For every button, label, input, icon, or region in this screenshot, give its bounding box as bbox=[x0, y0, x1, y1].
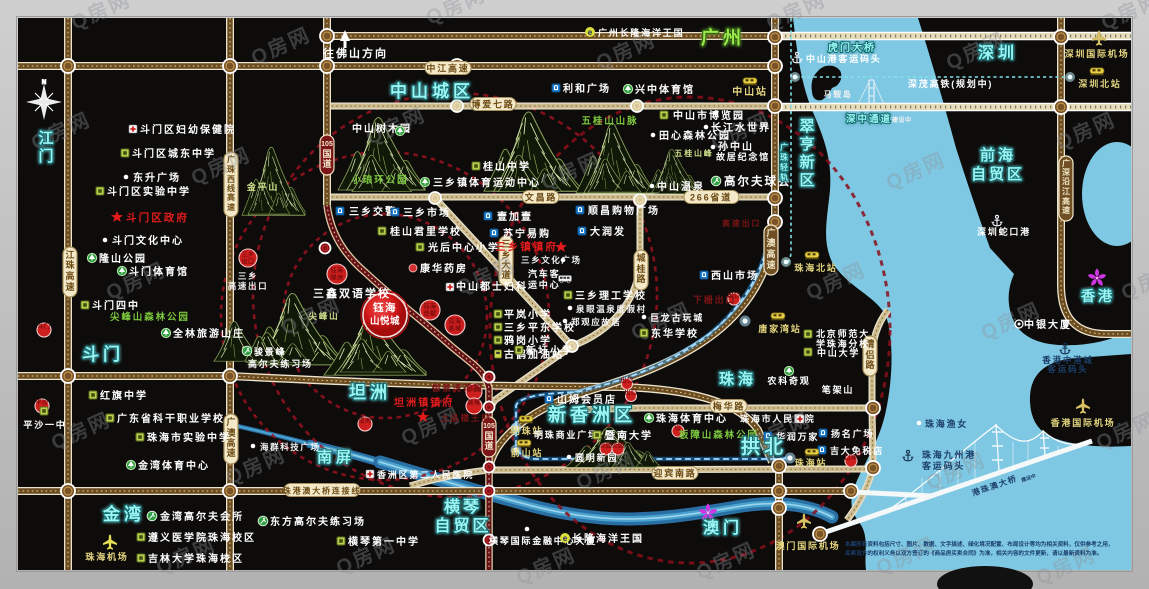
svg-text:桂: 桂 bbox=[635, 263, 645, 274]
svg-text:珠海: 珠海 bbox=[719, 370, 757, 388]
svg-text:前山站: 前山站 bbox=[511, 447, 543, 458]
svg-text:红旗中学: 红旗中学 bbox=[100, 389, 148, 402]
svg-text:苏宁易购: 苏宁易购 bbox=[503, 227, 551, 240]
svg-text:中山站: 中山站 bbox=[732, 85, 767, 98]
svg-text:斗门区妇幼保健院: 斗门区妇幼保健院 bbox=[140, 123, 236, 136]
svg-text:山姆会员店: 山姆会员店 bbox=[557, 393, 617, 406]
svg-text:吉大免税店: 吉大免税店 bbox=[830, 445, 884, 456]
svg-text:海群科技广场: 海群科技广场 bbox=[260, 442, 321, 452]
svg-text:中山大学: 中山大学 bbox=[817, 347, 860, 358]
svg-text:隆山公园: 隆山公园 bbox=[99, 252, 147, 265]
svg-text:广: 广 bbox=[1062, 158, 1070, 168]
svg-text:侣: 侣 bbox=[865, 349, 874, 360]
svg-text:中山都士妇科: 中山都士妇科 bbox=[456, 280, 528, 293]
svg-text:明珠商业广场: 明珠商业广场 bbox=[534, 429, 599, 440]
svg-text:国: 国 bbox=[322, 149, 331, 159]
svg-text:兴中体育馆: 兴中体育馆 bbox=[635, 83, 695, 96]
svg-text:珠海市实验中学: 珠海市实验中学 bbox=[147, 431, 231, 444]
svg-text:深圳蛇口港: 深圳蛇口港 bbox=[977, 226, 1031, 237]
svg-text:江: 江 bbox=[38, 129, 53, 147]
svg-text:金湾高尔夫会所: 金湾高尔夫会所 bbox=[159, 510, 244, 523]
svg-text:高速出口: 高速出口 bbox=[722, 218, 761, 228]
svg-text:澳: 澳 bbox=[766, 237, 776, 248]
svg-text:西: 西 bbox=[227, 175, 235, 184]
svg-text:三乡: 三乡 bbox=[241, 251, 254, 259]
svg-text:出口: 出口 bbox=[620, 377, 633, 385]
svg-text:长隆海洋王国: 长隆海洋王国 bbox=[572, 532, 644, 545]
svg-text:广: 广 bbox=[780, 142, 788, 152]
svg-text:买卖双方的权利义务以双方签订的《商品房买卖合同》为准，相关内: 买卖双方的权利义务以双方签订的《商品房买卖合同》为准，相关内容的文件更新，请以最… bbox=[845, 549, 1102, 557]
svg-text:公园: 公园 bbox=[611, 442, 624, 450]
svg-text:珠海机场: 珠海机场 bbox=[85, 551, 128, 562]
svg-text:城: 城 bbox=[636, 252, 645, 263]
svg-text:五桂山山脉: 五桂山山脉 bbox=[581, 115, 638, 127]
svg-text:深圳: 深圳 bbox=[978, 43, 1018, 62]
svg-text:利和广场: 利和广场 bbox=[563, 82, 611, 95]
svg-text:高: 高 bbox=[766, 248, 775, 259]
svg-text:中山市博览园: 中山市博览园 bbox=[673, 109, 745, 122]
svg-text:客运码头: 客运码头 bbox=[1046, 364, 1088, 374]
svg-text:桂山君里学校: 桂山君里学校 bbox=[389, 225, 462, 238]
svg-text:迎宾南路: 迎宾南路 bbox=[653, 468, 696, 479]
svg-text:平沙: 平沙 bbox=[35, 400, 48, 407]
svg-text:高: 高 bbox=[227, 192, 235, 202]
svg-text:钰海: 钰海 bbox=[448, 318, 461, 326]
svg-text:广州: 广州 bbox=[701, 27, 745, 48]
svg-text:五桂山峰: 五桂山峰 bbox=[674, 148, 713, 158]
svg-text:中江高速: 中江高速 bbox=[426, 63, 469, 74]
svg-text:御景湾花园: 御景湾花园 bbox=[431, 383, 484, 393]
svg-text:深茂高铁(规划中): 深茂高铁(规划中) bbox=[908, 78, 993, 89]
svg-text:遵义医学院珠海校区: 遵义医学院珠海校区 bbox=[148, 531, 256, 544]
svg-text:斗门区政府: 斗门区政府 bbox=[126, 211, 189, 224]
svg-text:266省道: 266省道 bbox=[690, 192, 732, 203]
svg-text:绿洲: 绿洲 bbox=[330, 274, 343, 282]
svg-text:珠海北站: 珠海北站 bbox=[794, 262, 837, 273]
svg-text:高尔夫练习场: 高尔夫练习场 bbox=[248, 358, 313, 369]
svg-text:唐家湾站: 唐家湾站 bbox=[758, 323, 801, 334]
svg-text:博爱七路: 博爱七路 bbox=[471, 99, 514, 110]
svg-text:中山城区: 中山城区 bbox=[390, 81, 474, 101]
svg-text:深圳北站: 深圳北站 bbox=[1078, 78, 1121, 89]
svg-text:南屏: 南屏 bbox=[317, 448, 355, 466]
svg-text:中银大厦: 中银大厦 bbox=[1024, 318, 1072, 331]
svg-text:广东省科干职业学校: 广东省科干职业学校 bbox=[117, 412, 225, 425]
svg-text:东华学校: 东华学校 bbox=[651, 327, 699, 340]
svg-text:深: 深 bbox=[1062, 167, 1070, 177]
svg-text:路: 路 bbox=[865, 359, 875, 370]
svg-text:斗门四中: 斗门四中 bbox=[92, 299, 140, 312]
svg-text:西山市场: 西山市场 bbox=[711, 269, 759, 282]
svg-text:三乡: 三乡 bbox=[238, 271, 258, 281]
svg-text:横琴: 横琴 bbox=[444, 497, 482, 516]
svg-text:新: 新 bbox=[799, 153, 814, 171]
svg-text:路: 路 bbox=[636, 273, 646, 284]
svg-text:区: 区 bbox=[799, 172, 814, 189]
svg-text:珠港澳大桥连接线: 珠港澳大桥连接线 bbox=[283, 486, 361, 496]
svg-text:道: 道 bbox=[322, 158, 331, 169]
svg-text:出口: 出口 bbox=[624, 389, 637, 397]
svg-text:往佛山方向: 往佛山方向 bbox=[323, 46, 388, 60]
svg-text:坦洲: 坦洲 bbox=[349, 383, 391, 402]
svg-text:钰海: 钰海 bbox=[373, 301, 397, 314]
svg-text:农科奇观: 农科奇观 bbox=[766, 375, 810, 386]
svg-text:轨: 轨 bbox=[780, 172, 788, 182]
svg-text:美域: 美域 bbox=[466, 399, 480, 407]
svg-text:香洲区第二人民医院: 香洲区第二人民医院 bbox=[376, 469, 474, 480]
svg-text:道: 道 bbox=[484, 440, 493, 451]
svg-text:新圩小学: 新圩小学 bbox=[526, 344, 574, 357]
svg-text:自贸区: 自贸区 bbox=[971, 165, 1025, 183]
svg-text:文昌路: 文昌路 bbox=[524, 192, 557, 203]
svg-text:山悦城: 山悦城 bbox=[370, 315, 400, 327]
svg-text:高速出口: 高速出口 bbox=[228, 281, 268, 291]
svg-text:斗门: 斗门 bbox=[37, 323, 50, 331]
svg-text:笔架山: 笔架山 bbox=[822, 384, 854, 395]
svg-text:亨: 亨 bbox=[799, 135, 814, 153]
svg-text:汽车客: 汽车客 bbox=[528, 268, 560, 279]
svg-text:速: 速 bbox=[227, 202, 235, 212]
svg-text:桂山中学: 桂山中学 bbox=[482, 160, 531, 173]
svg-text:客运码头: 客运码头 bbox=[921, 460, 965, 471]
svg-text:东升广场: 东升广场 bbox=[133, 171, 181, 184]
svg-text:泉眼温泉度假村: 泉眼温泉度假村 bbox=[575, 304, 647, 314]
svg-text:光后中心小学: 光后中心小学 bbox=[427, 241, 500, 254]
svg-text:故居纪念馆: 故居纪念馆 bbox=[716, 151, 770, 162]
svg-text:斗门区城东中学: 斗门区城东中学 bbox=[132, 147, 216, 160]
svg-text:三乡镇体育运动中心: 三乡镇体育运动中心 bbox=[433, 176, 541, 189]
svg-text:高: 高 bbox=[65, 270, 74, 281]
svg-text:下栅出口: 下栅出口 bbox=[693, 294, 736, 305]
svg-text:骏景峰: 骏景峰 bbox=[254, 346, 286, 357]
svg-text:沿: 沿 bbox=[1062, 176, 1070, 186]
svg-text:105: 105 bbox=[321, 141, 333, 148]
svg-text:珠海渔女: 珠海渔女 bbox=[925, 418, 968, 429]
svg-text:扬名广场: 扬名广场 bbox=[831, 428, 874, 439]
svg-text:顺昌购物广场: 顺昌购物广场 bbox=[588, 204, 660, 217]
svg-text:三乡镇镇府: 三乡镇镇府 bbox=[495, 240, 558, 253]
svg-text:坦洲镇镇府: 坦洲镇镇府 bbox=[394, 396, 455, 409]
svg-text:佳赋: 佳赋 bbox=[423, 310, 436, 318]
svg-text:翠: 翠 bbox=[799, 118, 814, 135]
svg-text:速: 速 bbox=[1062, 205, 1070, 215]
svg-text:虎门大桥: 虎门大桥 bbox=[828, 41, 876, 54]
svg-text:长江水世界: 长江水世界 bbox=[711, 121, 771, 134]
svg-text:巨龙古玩城: 巨龙古玩城 bbox=[650, 312, 704, 323]
svg-text:门: 门 bbox=[38, 147, 53, 165]
svg-text:运中心: 运中心 bbox=[528, 279, 560, 290]
svg-text:暨南大学: 暨南大学 bbox=[605, 429, 653, 442]
svg-text:深中通道: 深中通道 bbox=[846, 113, 892, 125]
svg-text:三鑫双语学校: 三鑫双语学校 bbox=[313, 286, 391, 300]
svg-text:斗门区实验中学: 斗门区实验中学 bbox=[107, 185, 191, 198]
svg-text:珠海九州港: 珠海九州港 bbox=[922, 449, 976, 460]
svg-text:郑观应故居: 郑观应故居 bbox=[571, 317, 622, 327]
svg-text:澳门国际机场: 澳门国际机场 bbox=[776, 540, 841, 551]
svg-text:钰海: 钰海 bbox=[330, 267, 343, 275]
svg-text:珠: 珠 bbox=[65, 259, 75, 270]
svg-text:江: 江 bbox=[1062, 186, 1070, 196]
svg-text:速: 速 bbox=[65, 281, 74, 292]
svg-text:三乡理工学校: 三乡理工学校 bbox=[575, 289, 647, 302]
svg-text:N: N bbox=[42, 80, 46, 86]
svg-text:坦洲: 坦洲 bbox=[358, 417, 371, 425]
svg-text:康华药房: 康华药房 bbox=[420, 262, 468, 275]
svg-text:中山温泉: 中山温泉 bbox=[657, 180, 705, 193]
svg-text:平岚小学: 平岚小学 bbox=[504, 308, 552, 321]
svg-text:三乡交警: 三乡交警 bbox=[349, 205, 397, 218]
svg-text:深圳国际机场: 深圳国际机场 bbox=[1065, 48, 1130, 59]
svg-text:横琴第一中学: 横琴第一中学 bbox=[348, 535, 420, 548]
svg-text:圆明新园: 圆明新园 bbox=[575, 452, 618, 463]
svg-text:拱北: 拱北 bbox=[741, 436, 787, 458]
svg-text:中山港客运码头: 中山港客运码头 bbox=[806, 53, 882, 64]
svg-text:金湾: 金湾 bbox=[102, 504, 145, 524]
svg-text:线: 线 bbox=[227, 183, 235, 193]
svg-text:全林旅游山庄: 全林旅游山庄 bbox=[172, 327, 245, 340]
svg-text:珠海站: 珠海站 bbox=[795, 457, 827, 468]
svg-text:平沙一中: 平沙一中 bbox=[23, 419, 66, 430]
svg-text:珠海体育中心: 珠海体育中心 bbox=[656, 412, 728, 425]
svg-text:速: 速 bbox=[226, 447, 235, 458]
svg-text:广州长隆海洋王国: 广州长隆海洋王国 bbox=[598, 27, 684, 38]
svg-text:梅华路: 梅华路 bbox=[713, 401, 745, 412]
svg-text:壹加壹: 壹加壹 bbox=[497, 210, 533, 223]
svg-text:尖峰山: 尖峰山 bbox=[309, 311, 340, 321]
svg-text:美域: 美域 bbox=[447, 325, 461, 333]
svg-text:广: 广 bbox=[766, 227, 775, 238]
svg-text:珠: 珠 bbox=[780, 152, 789, 162]
svg-text:尖峰山森林公园: 尖峰山森林公园 bbox=[110, 311, 190, 323]
svg-text:金平山: 金平山 bbox=[246, 181, 279, 192]
svg-text:高: 高 bbox=[1062, 196, 1070, 206]
svg-text:马鞍岛: 马鞍岛 bbox=[824, 89, 853, 99]
svg-text:大润发: 大润发 bbox=[590, 225, 626, 238]
svg-text:建设中: 建设中 bbox=[892, 116, 912, 124]
svg-text:斗门: 斗门 bbox=[82, 344, 124, 364]
svg-text:三乡文化广场: 三乡文化广场 bbox=[521, 255, 582, 265]
svg-text:北京师范大: 北京师范大 bbox=[816, 328, 870, 339]
svg-text:江: 江 bbox=[65, 249, 74, 260]
svg-text:三乡市场: 三乡市场 bbox=[403, 206, 451, 219]
svg-text:香港: 香港 bbox=[1080, 288, 1115, 304]
svg-text:澳门: 澳门 bbox=[703, 518, 743, 537]
svg-text:上品楼王府: 上品楼王府 bbox=[440, 413, 492, 423]
svg-text:速: 速 bbox=[766, 259, 775, 270]
svg-text:前海: 前海 bbox=[980, 146, 1016, 164]
svg-text:香港国际机场: 香港国际机场 bbox=[1050, 417, 1116, 428]
svg-text:吉林大学珠海校区: 吉林大学珠海校区 bbox=[148, 552, 244, 565]
svg-text:新香洲区: 新香洲区 bbox=[548, 404, 636, 425]
svg-text:斗门体育馆: 斗门体育馆 bbox=[129, 265, 189, 278]
svg-text:小琅环公园: 小琅环公园 bbox=[350, 174, 408, 186]
svg-text:本案所有资料包括尺寸、图片、数据、文字描述、绿化境况配置、布: 本案所有资料包括尺寸、图片、数据、文字描述、绿化境况配置、布局设计等均为相关资料… bbox=[845, 540, 1114, 548]
svg-text:斗门文化中心: 斗门文化中心 bbox=[112, 234, 184, 247]
svg-text:出口: 出口 bbox=[241, 258, 254, 266]
svg-text:广: 广 bbox=[226, 416, 235, 427]
svg-text:轻: 轻 bbox=[780, 162, 788, 172]
svg-text:自贸区: 自贸区 bbox=[434, 516, 491, 535]
svg-text:105: 105 bbox=[483, 423, 495, 430]
svg-text:三乡平东学校: 三乡平东学校 bbox=[504, 321, 576, 334]
svg-text:国: 国 bbox=[484, 431, 493, 441]
svg-text:金湾体育中心: 金湾体育中心 bbox=[137, 459, 210, 472]
svg-text:东方高尔夫练习场: 东方高尔夫练习场 bbox=[270, 515, 366, 528]
svg-text:钰海: 钰海 bbox=[423, 303, 436, 311]
